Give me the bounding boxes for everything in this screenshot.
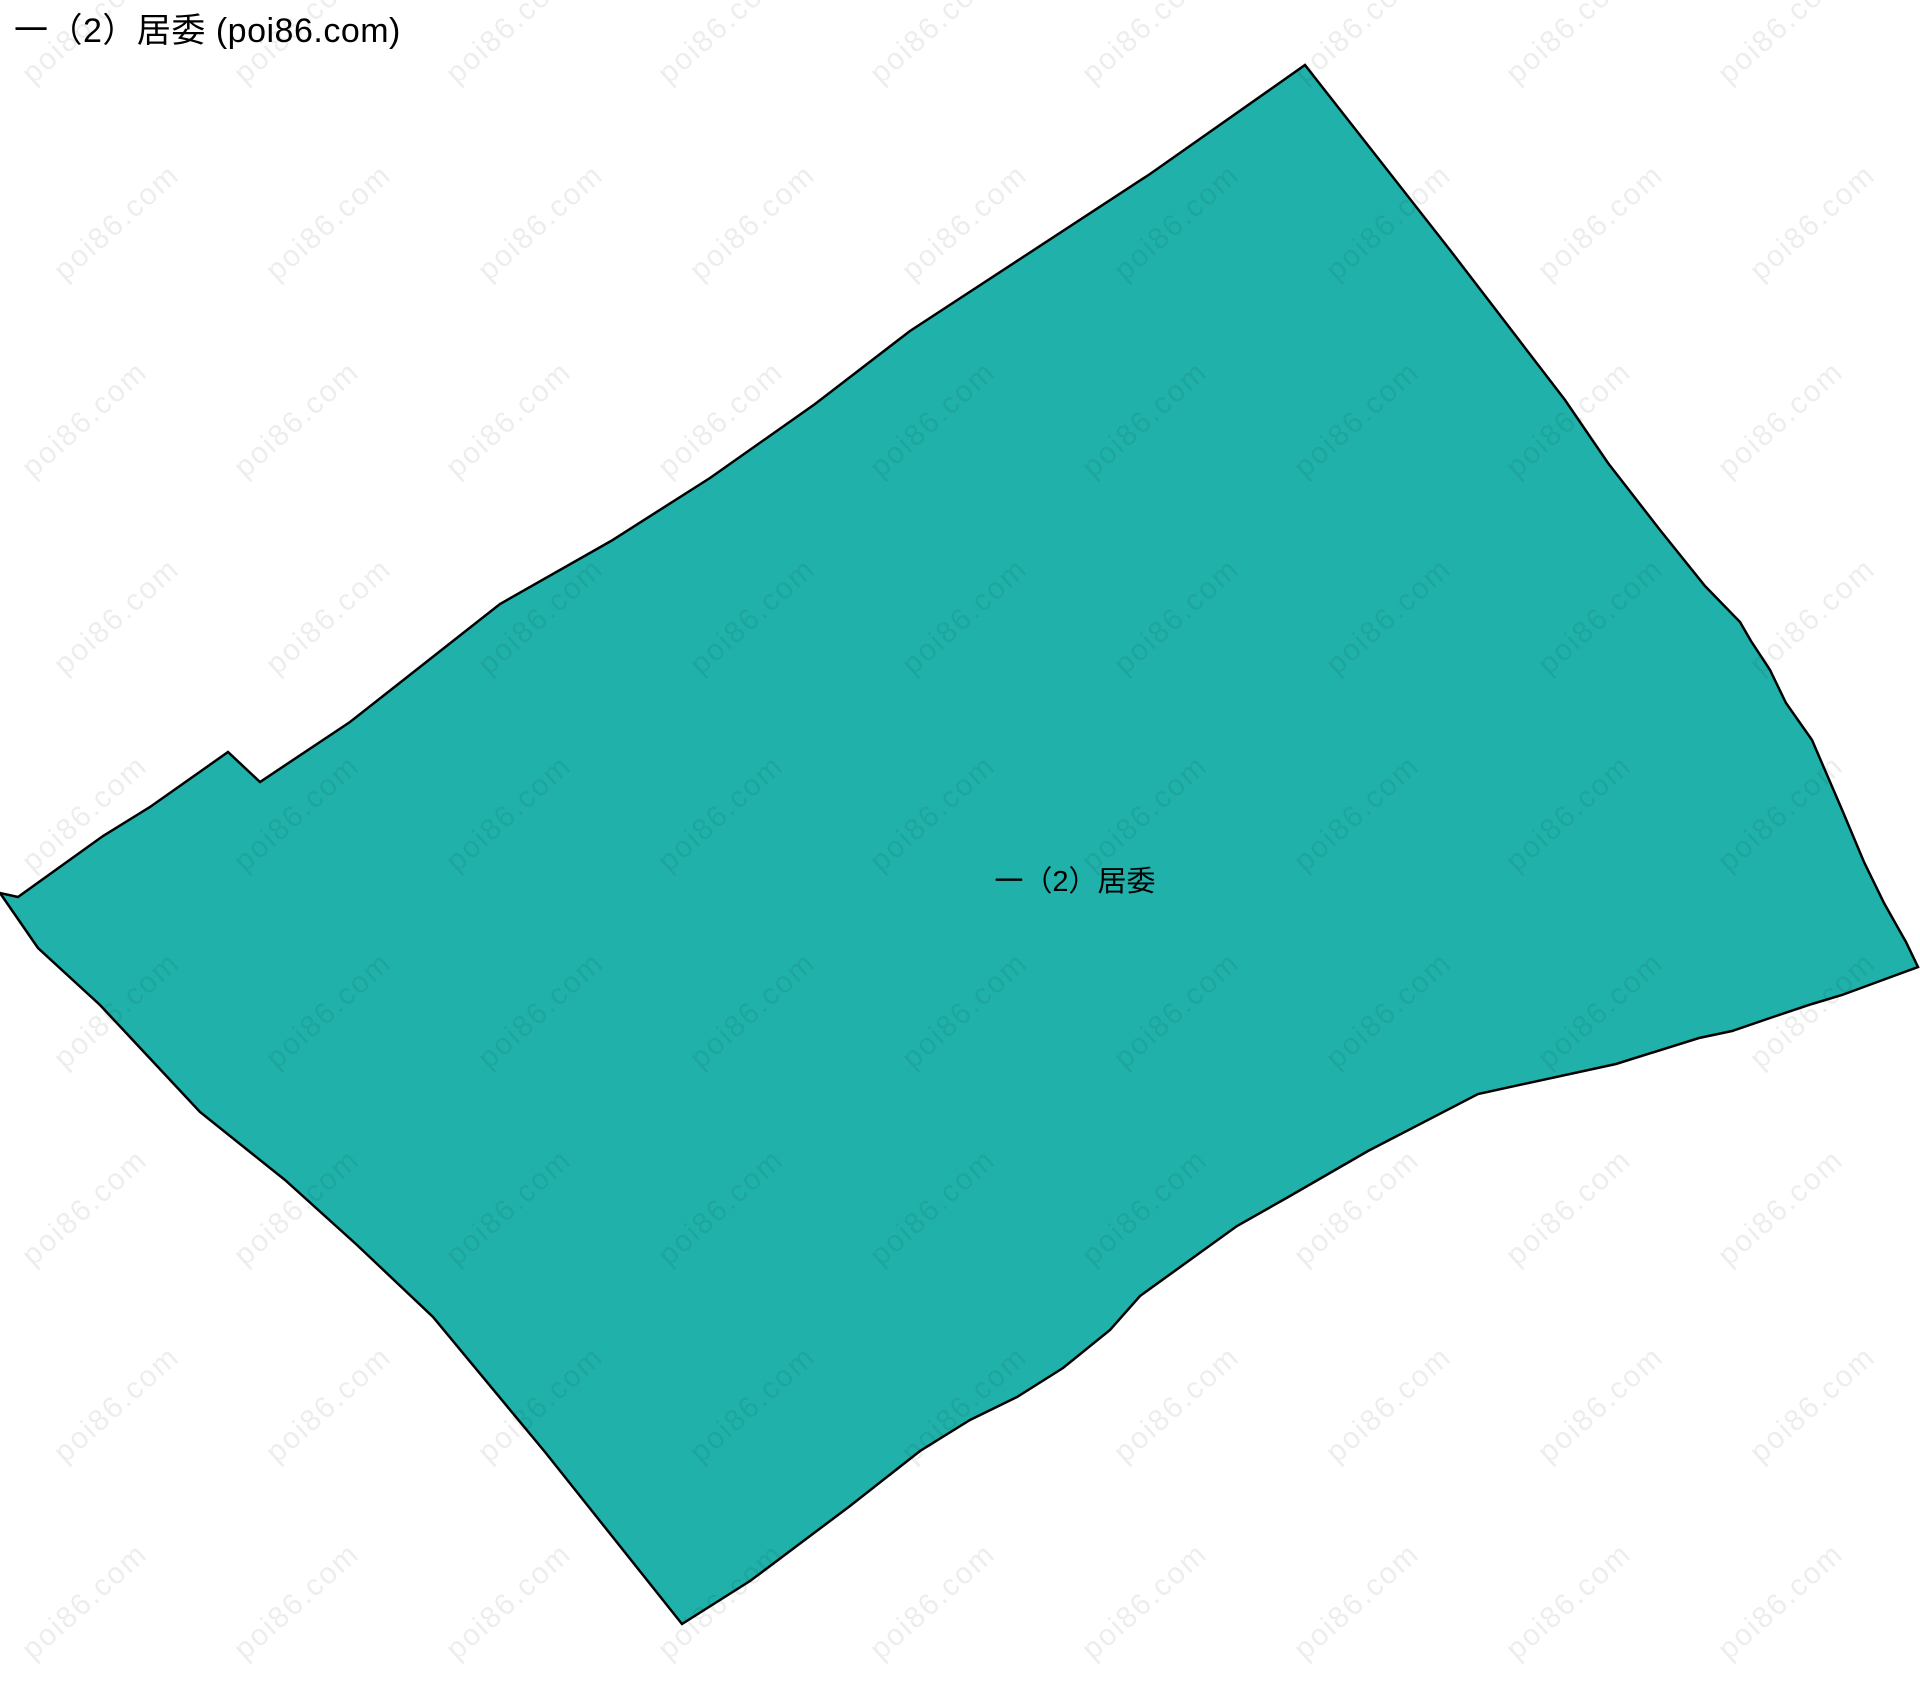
region-polygon xyxy=(0,65,1918,1624)
map-canvas: poi86.compoi86.compoi86.compoi86.compoi8… xyxy=(0,0,1920,1691)
region-label: 一（2）居委 xyxy=(994,858,1155,900)
page-title: 一（2）居委 (poi86.com) xyxy=(14,12,401,51)
region-map-svg xyxy=(0,0,1920,1691)
